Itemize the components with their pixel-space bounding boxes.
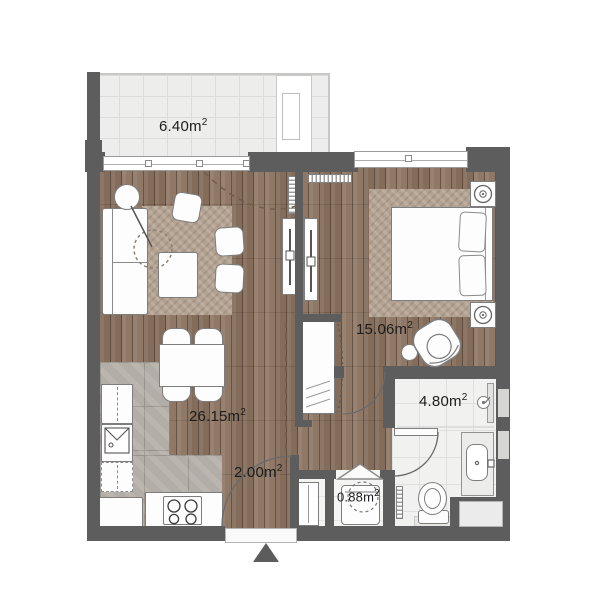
toilet-seat — [424, 488, 441, 509]
wardrobe — [302, 319, 335, 414]
area-value: 0.88m — [337, 489, 374, 504]
wall-segment — [383, 366, 395, 428]
bed-pillow — [458, 255, 486, 297]
area-value: 2.00m — [234, 464, 277, 481]
window-mullion — [145, 160, 152, 167]
nightstand — [470, 181, 496, 207]
area-sup: 2 — [240, 407, 246, 418]
towel-radiator — [396, 486, 403, 519]
dining-table — [159, 344, 225, 387]
area-sup: 2 — [374, 488, 380, 499]
exterior-unit — [459, 501, 503, 527]
coffee-table — [158, 252, 198, 298]
area-sup: 2 — [462, 392, 468, 403]
kitchen-counter — [101, 462, 133, 492]
floor-lamp — [114, 184, 140, 210]
room-label-bedroom: 15.06m2 — [356, 320, 413, 338]
sofa — [102, 208, 148, 315]
hall-cabinet — [298, 482, 319, 526]
duct-shaft — [498, 431, 509, 459]
wall-segment — [378, 470, 395, 479]
bathroom-sink — [466, 444, 488, 481]
room-label-balcony: 6.40m2 — [159, 117, 207, 135]
kitchen-sink-unit — [101, 424, 133, 462]
nightstand — [470, 302, 496, 328]
window-mullion — [196, 160, 203, 167]
wall-bathroom-top — [383, 366, 496, 379]
wall-segment — [290, 455, 299, 528]
balcony-bench — [282, 93, 300, 140]
balcony-door-window — [103, 156, 250, 171]
wall-divider-living-bedroom — [295, 170, 303, 322]
window-mullion — [243, 160, 250, 167]
stove — [163, 496, 202, 525]
wall-segment — [295, 420, 312, 427]
wall-segment — [87, 526, 225, 541]
area-sup: 2 — [407, 320, 413, 331]
bathroom-door-leaf — [394, 428, 438, 436]
ottoman — [214, 263, 244, 293]
room-label-hallway: 2.00m2 — [234, 463, 282, 481]
wall-segment — [496, 148, 510, 541]
room-label-living: 26.15m2 — [189, 407, 246, 425]
fridge — [97, 497, 143, 528]
room-label-bathroom: 4.80m2 — [419, 392, 467, 410]
area-value: 4.80m — [419, 393, 462, 410]
area-sup: 2 — [277, 463, 283, 474]
side-table — [401, 344, 418, 361]
ottoman — [214, 226, 245, 257]
area-value: 26.15m — [189, 408, 240, 425]
area-value: 6.40m — [159, 118, 202, 135]
wall-segment — [248, 152, 358, 172]
wall-segment — [383, 473, 395, 528]
tv-stand-bedroom — [304, 218, 318, 301]
window-mullion — [405, 155, 412, 162]
kitchen-tall-cabinet — [101, 384, 133, 424]
area-sup: 2 — [202, 117, 208, 128]
floor-plan: 6.40m2 26.15m2 2.00m2 0.88m2 15.06m2 4.8… — [0, 0, 600, 600]
entrance-arrow — [253, 543, 279, 562]
bed-pillow — [458, 211, 487, 252]
wall-segment — [325, 470, 334, 528]
ottoman — [171, 191, 204, 224]
radiator-bedroom — [308, 174, 352, 183]
entry-threshold — [225, 528, 297, 543]
duct-shaft — [498, 389, 509, 417]
wall-segment — [334, 366, 344, 378]
wall-segment — [295, 314, 303, 427]
area-value: 15.06m — [356, 321, 407, 338]
shower-head — [477, 396, 490, 409]
room-label-storage: 0.88m2 — [337, 488, 380, 504]
